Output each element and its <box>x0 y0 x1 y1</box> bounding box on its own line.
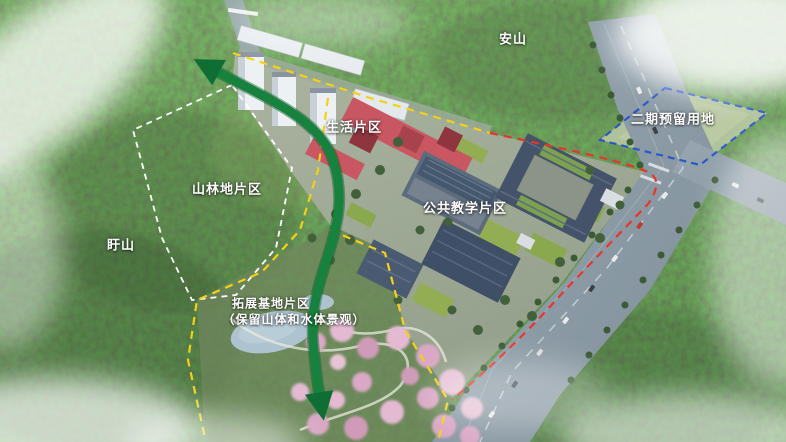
site-plan: 安山 二期预留用地 生活片区 山林地片区 盱山 公共教学片区 拓展基地片区 （保… <box>0 0 786 442</box>
aerial-rendering <box>0 0 786 442</box>
